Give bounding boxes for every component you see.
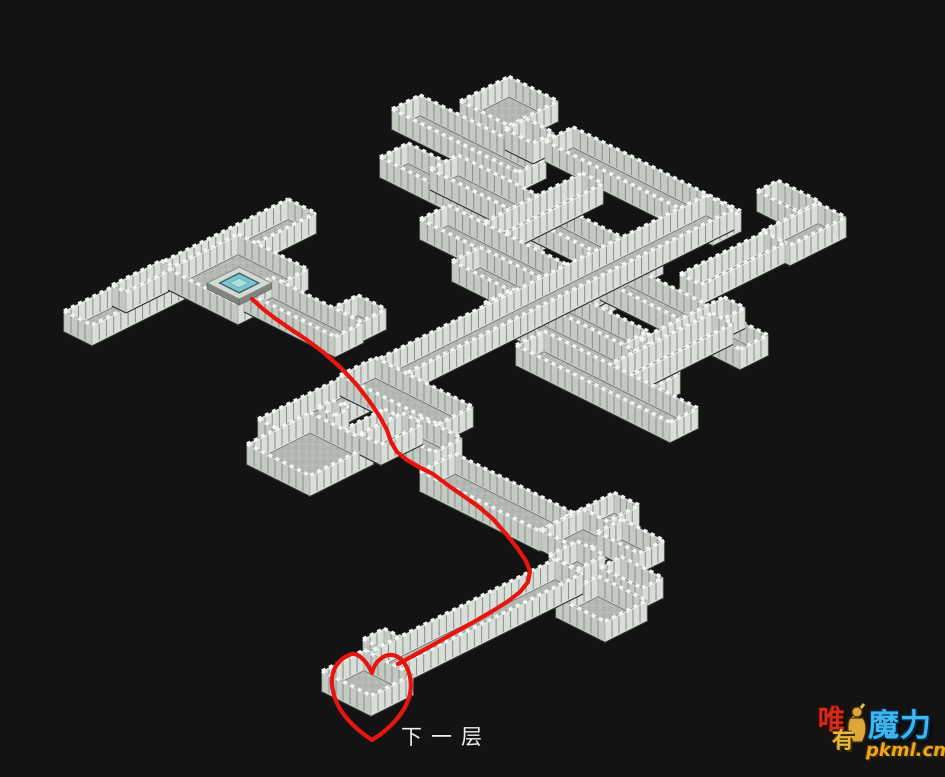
map-structures [64, 77, 846, 717]
watermark-char-you: 有 [832, 723, 854, 755]
dungeon-map [0, 0, 945, 777]
screenshot-root: { "colors": { "background": "#131313", "… [0, 0, 945, 777]
watermark-site-url: pkml.cn [866, 740, 945, 761]
next-floor-label: 下一层 [401, 721, 491, 751]
watermark-logo: 唯 有 魔力 pkml.cn [814, 694, 944, 774]
watermark-brand-moli: 魔力 [868, 700, 932, 745]
dungeon-map-viewport: 下一层 唯 有 魔力 pkml.cn [0, 0, 945, 777]
